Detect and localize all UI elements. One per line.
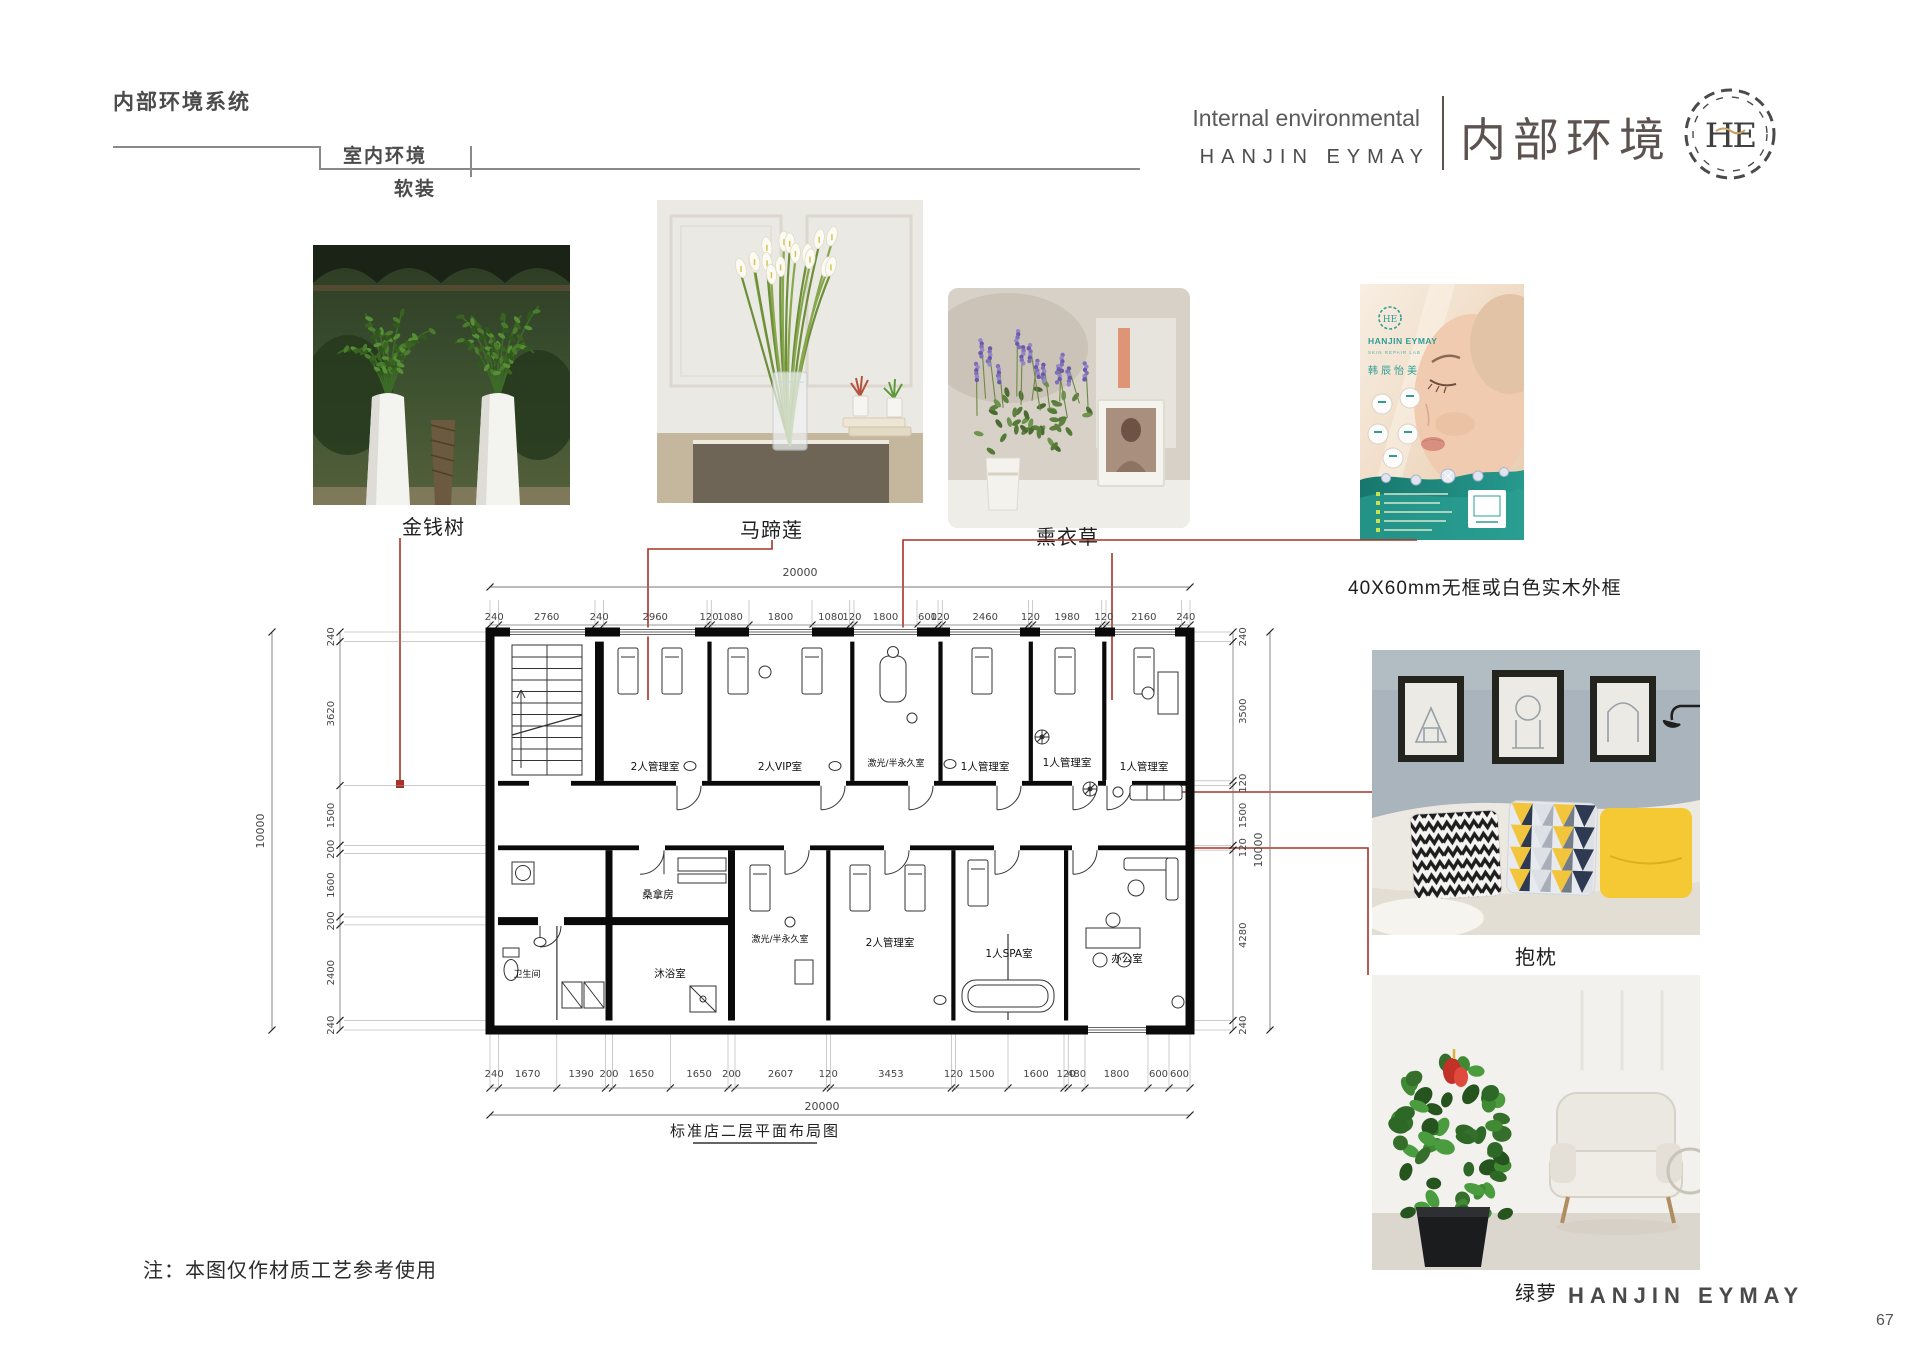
header-title-cn: 内部环境 — [1460, 104, 1672, 170]
dim-chain-top: 2402760240296012010801800108012018006001… — [485, 600, 1196, 630]
brand-poster-photo: HE HANJIN EYMAY SKIN REPAIR LAB 韩辰怡美 — [1360, 284, 1524, 540]
room-label: 2人管理室 — [631, 760, 680, 773]
svg-text:2400: 2400 — [326, 960, 337, 985]
breadcrumb-level3: 软装 — [394, 174, 436, 201]
svg-text:240: 240 — [1176, 612, 1195, 623]
breadcrumb-level2: 室内环境 — [343, 141, 427, 168]
pothos-photo — [1372, 975, 1700, 1270]
photo-frame-in-lavender — [1098, 400, 1164, 486]
svg-text:2960: 2960 — [642, 612, 667, 623]
svg-text:1500: 1500 — [1238, 803, 1249, 828]
svg-text:SKIN REPAIR LAB: SKIN REPAIR LAB — [1368, 350, 1421, 355]
dim-chain-left: 2403620150020016002002400240 — [326, 627, 490, 1035]
calla-lily-photo — [657, 200, 923, 503]
svg-text:1800: 1800 — [768, 612, 793, 623]
svg-text:1500: 1500 — [326, 803, 337, 828]
svg-text:120: 120 — [1021, 612, 1040, 623]
brand-logo: HE — [1680, 84, 1780, 184]
logo-monogram: HE — [1705, 116, 1756, 156]
total-height-right: 10000 — [1252, 833, 1265, 868]
total-height-left: 10000 — [254, 814, 267, 849]
svg-text:3500: 3500 — [1238, 698, 1249, 723]
room-label: 激光/半永久室 — [867, 757, 924, 769]
svg-text:2607: 2607 — [768, 1069, 793, 1080]
door-gaps — [529, 780, 1132, 926]
footer-brand: HANJIN EYMAY — [1568, 1283, 1804, 1309]
svg-text:120: 120 — [931, 612, 950, 623]
floor-plan: 2402760240296012010801800108012018006001… — [250, 530, 1310, 1190]
svg-text:1800: 1800 — [1104, 1069, 1129, 1080]
svg-text:HANJIN EYMAY: HANJIN EYMAY — [1368, 336, 1437, 346]
svg-text:1670: 1670 — [515, 1069, 540, 1080]
svg-text:240: 240 — [1238, 627, 1249, 646]
svg-text:1980: 1980 — [1054, 612, 1079, 623]
header-brand-en: HANJIN EYMAY — [1150, 146, 1430, 169]
furniture — [534, 648, 1154, 1005]
yellow-pillow — [1600, 808, 1692, 898]
overall-dim-lines — [272, 587, 1270, 1115]
footer-note: 注：本图仅作材质工艺参考使用 — [143, 1254, 437, 1283]
svg-text:2460: 2460 — [973, 612, 998, 623]
svg-text:200: 200 — [722, 1069, 741, 1080]
svg-text:120: 120 — [819, 1069, 838, 1080]
room-label: 办公室 — [1111, 952, 1143, 965]
money-tree-photo — [313, 245, 570, 505]
plan-caption: 标准店二层平面布局图 — [670, 1122, 840, 1140]
room-label: 1人SPA室 — [985, 947, 1032, 960]
svg-text:600: 600 — [1170, 1069, 1189, 1080]
wall-frames — [1398, 670, 1656, 764]
svg-text:1080: 1080 — [818, 612, 843, 623]
svg-text:120: 120 — [1094, 612, 1113, 623]
breadcrumb-line-1 — [113, 146, 321, 148]
svg-text:120: 120 — [1238, 838, 1249, 857]
svg-text:3453: 3453 — [878, 1069, 903, 1080]
svg-text:120: 120 — [1238, 774, 1249, 793]
svg-text:HE: HE — [1383, 315, 1397, 325]
svg-text:1500: 1500 — [969, 1069, 994, 1080]
svg-text:240: 240 — [326, 627, 337, 646]
svg-text:480: 480 — [1067, 1069, 1086, 1080]
svg-text:120: 120 — [700, 612, 719, 623]
svg-text:200: 200 — [599, 1069, 618, 1080]
svg-text:240: 240 — [326, 1016, 337, 1035]
poster-frame-label: 40X60mm无框或白色实木外框 — [1348, 573, 1622, 600]
header-divider — [1442, 96, 1444, 170]
svg-text:1800: 1800 — [873, 612, 898, 623]
dim-chain-bottom: 2401670139020016501650200260712034531201… — [485, 1032, 1194, 1092]
svg-text:1600: 1600 — [326, 872, 337, 897]
chevron-pillow — [1410, 810, 1502, 900]
svg-text:1390: 1390 — [568, 1069, 593, 1080]
staircase — [512, 645, 582, 775]
svg-text:200: 200 — [326, 911, 337, 930]
svg-text:3620: 3620 — [326, 701, 337, 726]
breadcrumb-line-2 — [319, 168, 1140, 170]
total-width-bottom: 20000 — [805, 1100, 840, 1113]
svg-text:240: 240 — [1238, 1016, 1249, 1035]
pillow-label: 抱枕 — [1372, 941, 1700, 970]
svg-text:120: 120 — [842, 612, 861, 623]
room-label: 1人管理室 — [1043, 756, 1092, 769]
room-label: 2人VIP室 — [758, 760, 802, 773]
pillows-photo — [1372, 650, 1700, 935]
svg-text:240: 240 — [485, 612, 504, 623]
total-width-top: 20000 — [783, 566, 818, 579]
svg-text:1600: 1600 — [1023, 1069, 1048, 1080]
triangle-pillow — [1506, 800, 1597, 895]
header-title-en: Internal environmental — [1180, 105, 1420, 132]
svg-text:4280: 4280 — [1238, 923, 1249, 948]
dim-chain-right: 240350012015001204280240 — [1190, 627, 1249, 1035]
svg-text:1650: 1650 — [686, 1069, 711, 1080]
room-label: 卫生间 — [513, 968, 540, 980]
svg-text:600: 600 — [1149, 1069, 1168, 1080]
svg-text:200: 200 — [326, 840, 337, 859]
svg-text:1080: 1080 — [717, 612, 742, 623]
svg-text:1650: 1650 — [629, 1069, 654, 1080]
interior-walls — [498, 642, 1186, 1021]
room-label: 1人管理室 — [961, 760, 1010, 773]
page-number: 67 — [1876, 1312, 1894, 1330]
room-label: 桑拿房 — [642, 888, 674, 901]
lavender-photo — [948, 288, 1190, 528]
overall-dim-ticks — [269, 584, 1274, 1119]
room-label: 1人管理室 — [1120, 760, 1169, 773]
poster-bottom-band — [1360, 468, 1524, 541]
breadcrumb-level1: 内部环境系统 — [113, 86, 251, 116]
room-label: 激光/半永久室 — [751, 933, 808, 945]
svg-text:240: 240 — [485, 1069, 504, 1080]
svg-text:2160: 2160 — [1131, 612, 1156, 623]
furniture-extra — [503, 647, 1184, 1013]
room-label: 2人管理室 — [866, 936, 915, 949]
room-label: 沐浴室 — [654, 967, 686, 980]
svg-text:韩辰怡美: 韩辰怡美 — [1368, 364, 1420, 377]
svg-text:2760: 2760 — [534, 612, 559, 623]
svg-text:120: 120 — [944, 1069, 963, 1080]
breadcrumb-separator — [470, 146, 472, 177]
svg-text:240: 240 — [590, 612, 609, 623]
breadcrumb-step-1 — [319, 146, 321, 170]
